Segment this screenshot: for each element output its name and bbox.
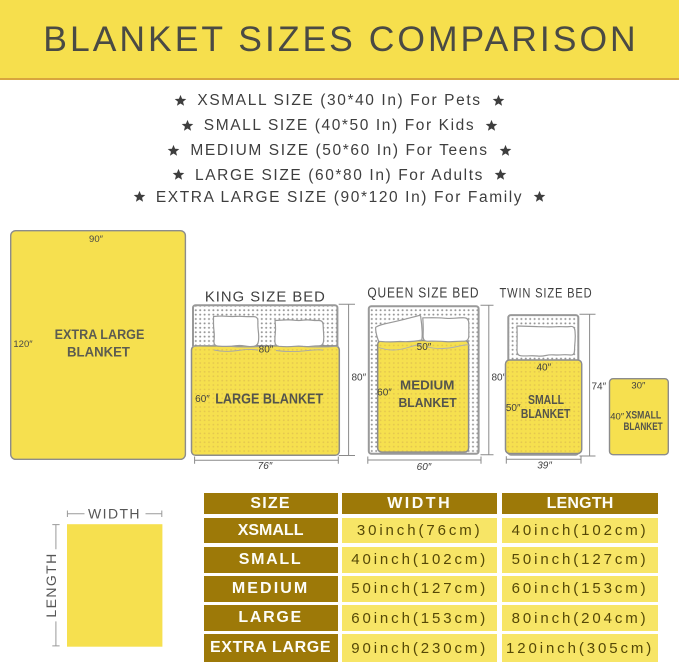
svg-text:BLANKET: BLANKET [624,421,663,433]
svg-text:SMALL: SMALL [528,392,564,407]
svg-text:LENGTH: LENGTH [43,552,59,617]
svg-text:EXTRA LARGE: EXTRA LARGE [55,327,145,342]
svg-text:50″: 50″ [506,403,521,414]
svg-text:74″: 74″ [592,382,607,393]
svg-text:80″: 80″ [352,373,367,384]
svg-text:MEDIUM: MEDIUM [400,377,454,392]
svg-text:80″: 80″ [259,345,274,356]
svg-text:KING SIZE BED: KING SIZE BED [205,290,326,306]
svg-text:QUEEN SIZE BED: QUEEN SIZE BED [367,285,479,301]
svg-text:40″: 40″ [536,363,551,374]
svg-text:60″: 60″ [377,387,392,398]
svg-text:30″: 30″ [631,381,646,392]
svg-text:39″: 39″ [537,461,552,472]
svg-text:BLANKET: BLANKET [398,395,456,410]
svg-text:76″: 76″ [258,461,273,472]
svg-text:80″: 80″ [492,373,507,384]
svg-text:XSMALL: XSMALL [626,409,662,421]
svg-text:50″: 50″ [417,342,432,353]
svg-text:TWIN SIZE BED: TWIN SIZE BED [500,285,593,300]
svg-text:60″: 60″ [417,462,432,473]
svg-text:BLANKET: BLANKET [521,406,571,421]
svg-text:WIDTH: WIDTH [88,505,141,521]
svg-text:LARGE BLANKET: LARGE BLANKET [215,391,323,408]
svg-text:60″: 60″ [195,394,210,405]
svg-text:90″: 90″ [89,234,104,245]
svg-text:BLANKET: BLANKET [67,344,131,359]
svg-text:120″: 120″ [13,339,33,350]
